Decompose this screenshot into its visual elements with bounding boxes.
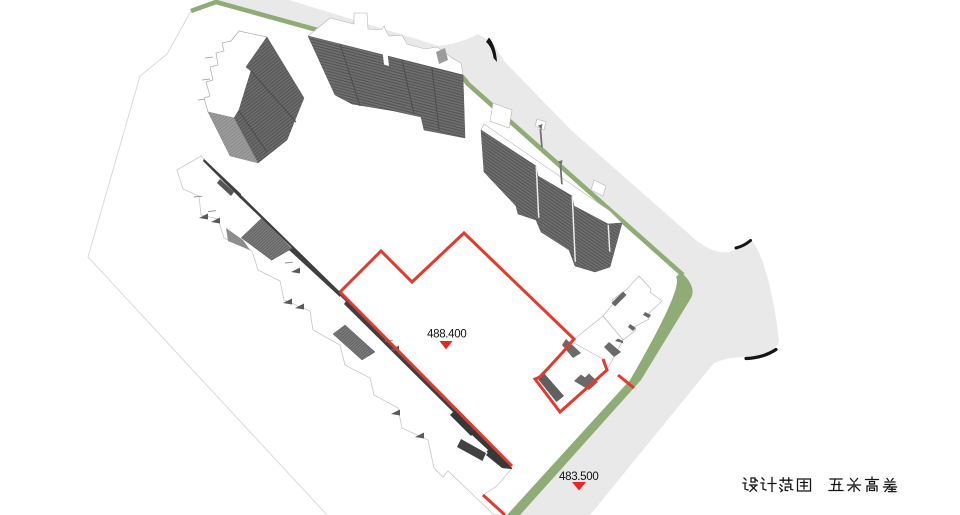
svg-text:483.500: 483.500: [559, 471, 598, 483]
svg-text:488.400: 488.400: [427, 329, 466, 341]
